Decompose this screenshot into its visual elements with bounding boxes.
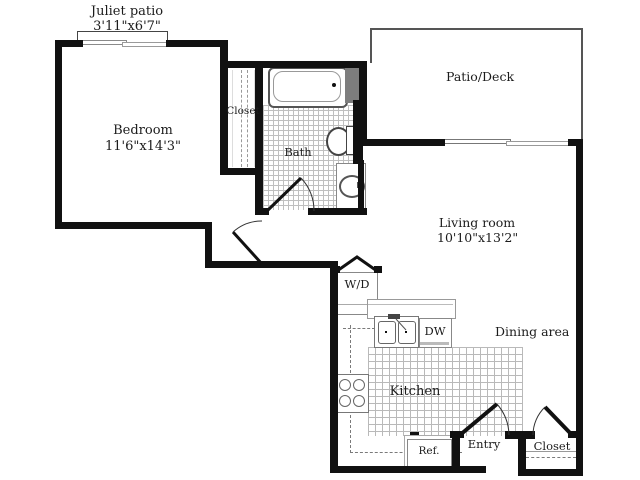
wall-bath-left <box>255 61 263 215</box>
wall-bath-right-upper <box>353 100 363 164</box>
washer-dryer-label: W/D <box>339 278 375 290</box>
stove-burner <box>353 395 365 407</box>
wall-bedroom-left <box>55 40 62 229</box>
sink-drain-dot <box>385 331 387 333</box>
entry-label: Entry <box>464 438 504 450</box>
stove-burner <box>339 395 351 407</box>
patio-deck-outline-right <box>581 28 583 141</box>
wall-patio-corner <box>568 139 583 146</box>
patio-sliding-door <box>443 139 511 144</box>
wall-bath-bottom-stub <box>255 208 269 215</box>
entry-closet-rod-dashed <box>526 457 576 458</box>
dishwasher-shade <box>420 342 449 345</box>
bathtub-basin <box>273 71 341 102</box>
wall-entry-left <box>452 434 460 471</box>
upper-cabinet-dashed-line <box>343 328 375 329</box>
wall-bedroom-top-right <box>166 40 228 47</box>
wall-wd-stub-right <box>374 266 382 273</box>
sink-faucet <box>388 314 400 319</box>
wall-bedroom-top-left <box>55 40 83 47</box>
closet-hanging-rod <box>241 70 248 167</box>
kitchen-counter-edge-line <box>368 304 453 305</box>
sink-basin-left <box>378 321 396 344</box>
refrigerator-handle <box>410 432 419 435</box>
living-room-label: Living room <box>437 216 517 229</box>
wall-hall-bottom <box>205 261 338 268</box>
bedroom-door-leaf <box>233 232 262 264</box>
wall-unit-right <box>576 139 583 476</box>
wall-bedroom-bottom <box>55 222 212 229</box>
stove-burner <box>353 379 365 391</box>
kitchen-label: Kitchen <box>385 385 445 399</box>
juliet-patio-dims: 3'11"x6'7" <box>77 20 177 34</box>
wall-entry-jamb-left <box>450 431 464 438</box>
bedroom-door-arc <box>233 221 262 232</box>
bathtub-drain <box>332 83 336 87</box>
washer-dryer-bifold-door <box>337 257 377 271</box>
bedroom-dims: 11'6"x14'3" <box>103 140 183 154</box>
entry-closet-label: Closet <box>530 440 574 452</box>
wall-closet-jamb-right <box>568 431 583 438</box>
juliet-sliding-door <box>79 40 127 45</box>
wall-kitchen-left <box>330 261 338 473</box>
dining-area-label: Dining area <box>495 325 567 338</box>
dishwasher-label: DW <box>420 325 450 337</box>
juliet-sliding-door <box>122 42 170 47</box>
wall-closet-bottom-right <box>518 469 583 476</box>
juliet-patio-label: Juliet patio <box>77 5 177 19</box>
sink-basin-right <box>398 321 416 344</box>
bedroom-closet-label: Closet <box>226 106 260 117</box>
patio-deck-outline-left <box>370 28 372 63</box>
closet-side-line <box>232 70 233 167</box>
sink-drain-dot <box>405 331 407 333</box>
patio-deck-label: Patio/Deck <box>440 70 520 83</box>
wall-bath-right-lower <box>358 160 364 212</box>
living-room-dims: 10'10"x13'2" <box>437 231 517 244</box>
refrigerator-label: Ref. <box>411 446 447 457</box>
bedroom-label: Bedroom <box>103 124 183 138</box>
stove-burner <box>339 379 351 391</box>
wall-living-patio <box>359 139 445 146</box>
bath-label: Bath <box>283 146 313 158</box>
wall-bottom-main <box>330 466 486 473</box>
wall-closet-bath-top <box>220 61 366 68</box>
patio-sliding-door <box>506 141 574 146</box>
floor-plan: Juliet patio 3'11"x6'7" Bedroom 11'6"x14… <box>0 0 640 480</box>
patio-deck-outline-top <box>370 28 583 30</box>
wall-wd-stub-left <box>333 266 340 273</box>
